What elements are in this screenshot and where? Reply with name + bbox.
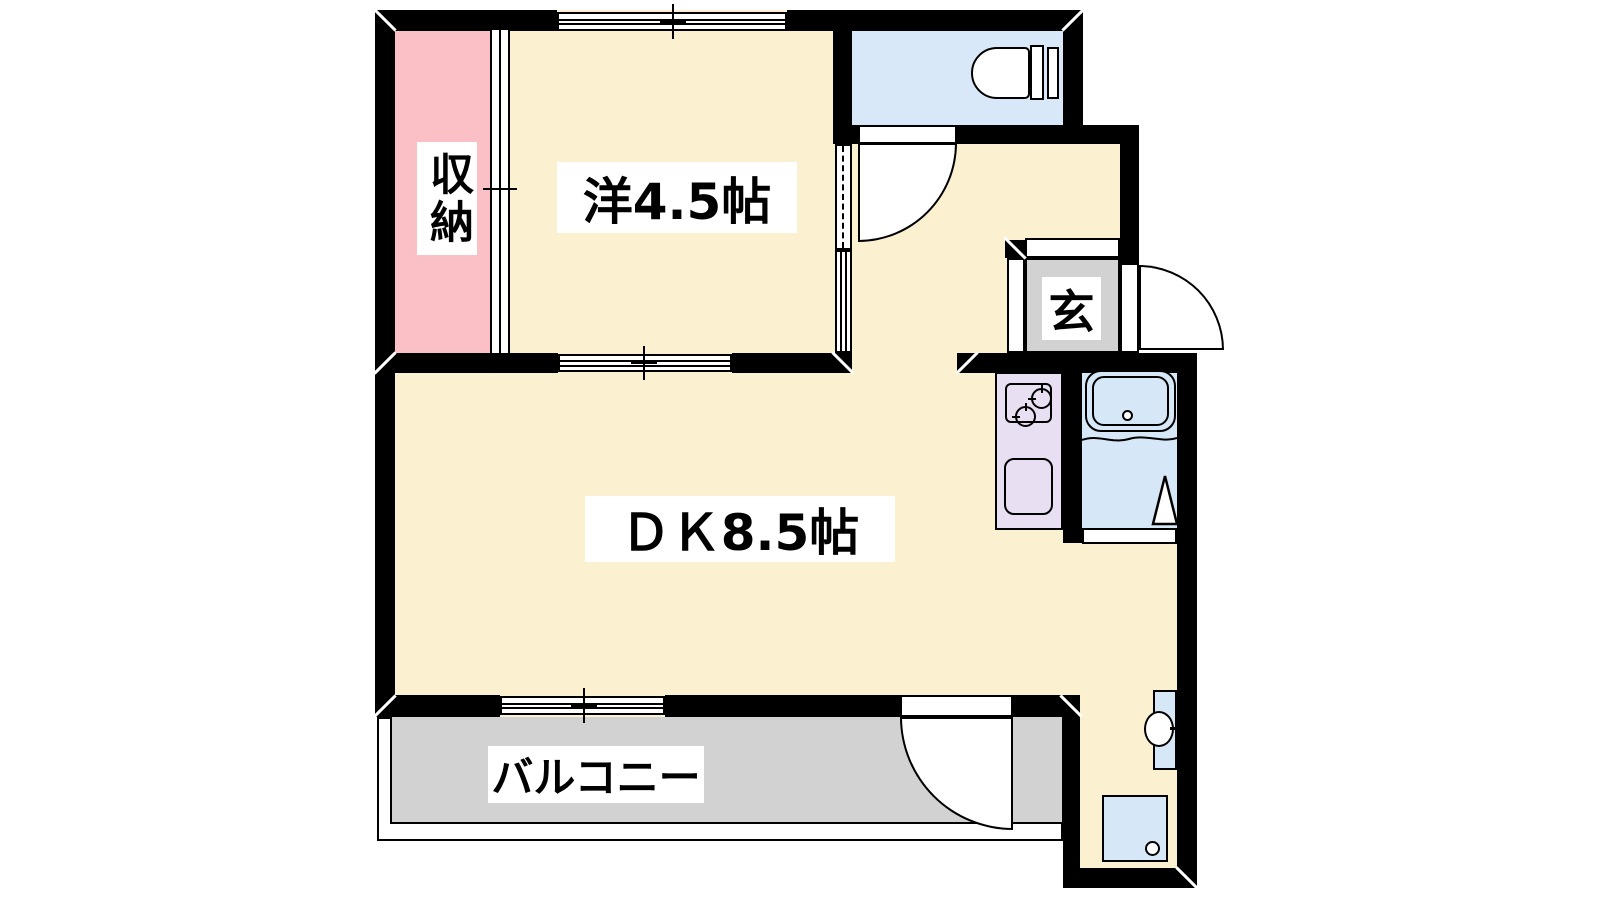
wall-corridor-left bbox=[1063, 717, 1080, 868]
bath-folding-door-icon bbox=[1151, 473, 1179, 527]
wall-top-left bbox=[375, 10, 557, 31]
entrance-label: 玄 bbox=[1042, 277, 1101, 340]
bathtub-drain-icon bbox=[1122, 410, 1133, 421]
closet-label: 収納 bbox=[417, 142, 477, 255]
entrance-door-swing bbox=[1139, 265, 1224, 350]
entrance-step-left bbox=[1007, 258, 1025, 353]
western-sliding-door-upper bbox=[835, 144, 852, 250]
wall-bottom-2 bbox=[665, 695, 900, 717]
wall-toilet-bottom-stub bbox=[833, 125, 858, 144]
toilet-door-opening bbox=[858, 125, 957, 144]
bath-waterline bbox=[1082, 430, 1177, 448]
closet-sliding-door bbox=[490, 30, 510, 353]
balcony-door-opening bbox=[900, 695, 1013, 717]
washbasin-faucet-icon bbox=[1170, 727, 1182, 730]
washer-drain-icon bbox=[1145, 841, 1160, 856]
wall-kitchen-bath bbox=[1063, 355, 1082, 543]
dk-label: ＤＫ8.5帖 bbox=[585, 496, 895, 562]
burner-icon bbox=[1031, 388, 1052, 409]
wall-toilet-right bbox=[1063, 10, 1083, 144]
balcony-label: バルコニー bbox=[488, 746, 704, 803]
wall-top-right bbox=[787, 10, 1083, 31]
toilet-tank-icon bbox=[1030, 45, 1044, 100]
wall-right bbox=[1177, 373, 1197, 868]
floor-plan: 収納 洋4.5帖 ＤＫ8.5帖 玄 バルコニー bbox=[0, 0, 1600, 900]
toilet-lid-icon bbox=[1047, 47, 1059, 99]
burner-icon bbox=[1015, 406, 1036, 427]
wall-hall-top bbox=[957, 125, 1139, 144]
toilet-icon bbox=[971, 47, 1030, 99]
entrance-door-leaf bbox=[1120, 263, 1139, 353]
western-room-label: 洋4.5帖 bbox=[557, 162, 797, 233]
kitchen-sink-icon bbox=[1004, 458, 1053, 515]
wall-mid-left bbox=[375, 353, 558, 373]
western-sliding-door-lower bbox=[835, 250, 852, 353]
window-north bbox=[557, 12, 787, 31]
window-dk-south bbox=[500, 696, 665, 715]
wall-entrance-right bbox=[1120, 144, 1139, 263]
window-western-dk bbox=[558, 354, 732, 372]
bath-door-opening bbox=[1082, 528, 1177, 544]
stove-icon bbox=[1005, 383, 1052, 423]
entrance-step-top bbox=[1025, 238, 1120, 258]
